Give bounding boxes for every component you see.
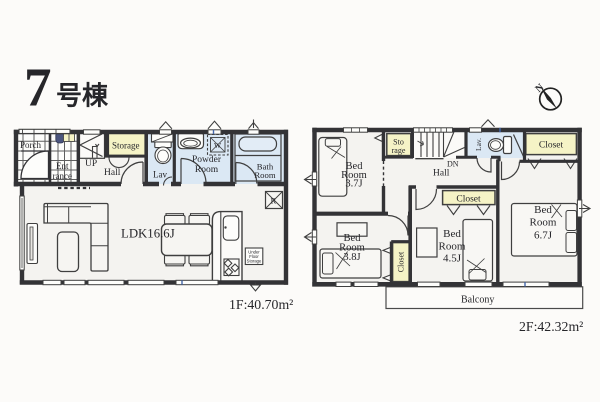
svg-text:Closet: Closet bbox=[539, 141, 564, 151]
svg-text:1F:40.70m²: 1F:40.70m² bbox=[229, 297, 293, 312]
svg-text:Balcony: Balcony bbox=[461, 295, 494, 306]
svg-text:R: R bbox=[271, 196, 277, 206]
svg-text:rance: rance bbox=[53, 171, 72, 181]
svg-text:Storage: Storage bbox=[247, 259, 262, 264]
svg-text:Ent: Ent bbox=[56, 161, 69, 171]
svg-text:Room: Room bbox=[254, 170, 275, 180]
svg-text:Room: Room bbox=[530, 217, 557, 229]
svg-text:7: 7 bbox=[24, 57, 52, 118]
svg-text:Room: Room bbox=[439, 241, 466, 253]
svg-text:Porch: Porch bbox=[20, 140, 41, 150]
svg-text:Hall: Hall bbox=[104, 168, 121, 178]
svg-text:3.7J: 3.7J bbox=[345, 179, 362, 190]
svg-text:Room: Room bbox=[195, 165, 219, 175]
svg-text:Hall: Hall bbox=[433, 169, 450, 179]
svg-text:Powder: Powder bbox=[192, 155, 222, 165]
svg-text:Closet: Closet bbox=[456, 195, 481, 205]
svg-text:Bed: Bed bbox=[534, 204, 552, 216]
svg-text:6.7J: 6.7J bbox=[534, 230, 553, 242]
svg-text:DN: DN bbox=[447, 160, 459, 169]
svg-text:Lav: Lav bbox=[153, 170, 167, 180]
svg-text:UP: UP bbox=[85, 159, 97, 169]
svg-text:rage: rage bbox=[392, 146, 406, 155]
svg-text:Storage: Storage bbox=[112, 141, 140, 151]
svg-text:LDK16.6J: LDK16.6J bbox=[121, 227, 175, 241]
svg-text:Lav.: Lav. bbox=[474, 138, 483, 151]
svg-text:4.5J: 4.5J bbox=[443, 253, 462, 265]
svg-text:3.8J: 3.8J bbox=[343, 252, 360, 263]
svg-text:2F:42.32m²: 2F:42.32m² bbox=[519, 319, 583, 334]
svg-text:Closet: Closet bbox=[397, 251, 406, 272]
svg-text:W: W bbox=[214, 141, 222, 150]
svg-text:Bed: Bed bbox=[443, 228, 461, 240]
svg-text:号棟: 号棟 bbox=[56, 82, 109, 111]
